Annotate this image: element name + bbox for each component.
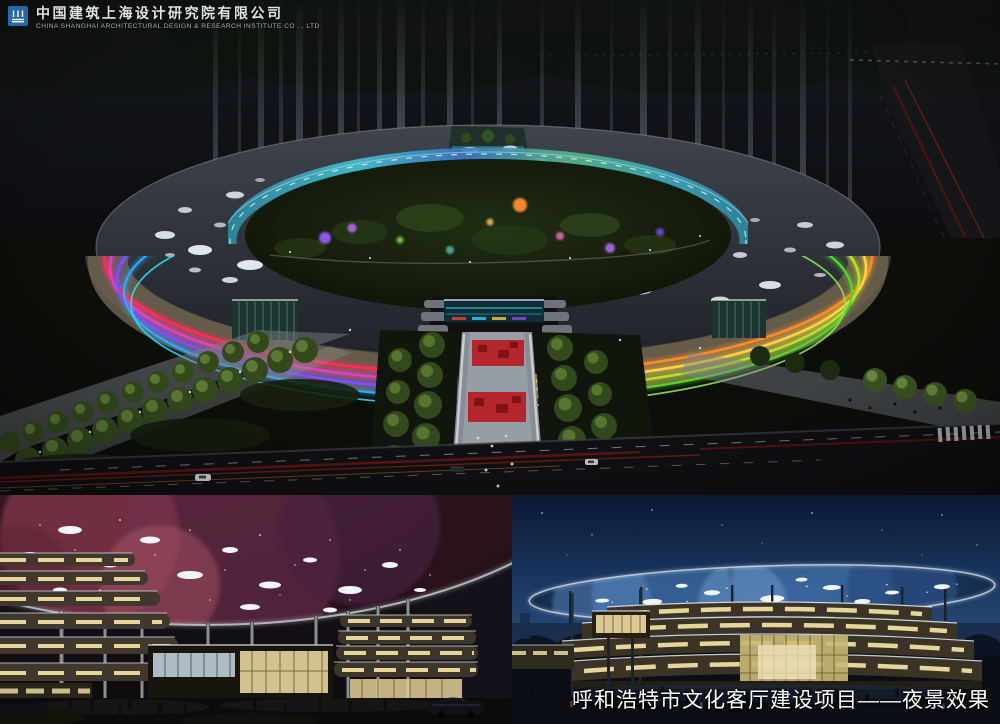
canopy-closeup-render bbox=[0, 495, 512, 724]
company-name-zh: 中国建筑上海设计研究院有限公司 bbox=[36, 6, 320, 21]
warm-lit-lobby bbox=[240, 651, 328, 693]
aerial-render bbox=[0, 0, 1000, 495]
company-name-block: 中国建筑上海设计研究院有限公司 CHINA SHANGHAI ARCHITECT… bbox=[36, 6, 320, 31]
nebula-canopy-closeup-panel bbox=[0, 495, 512, 724]
foreground bbox=[0, 698, 512, 724]
car-edge bbox=[0, 704, 48, 717]
csadi-seal-icon bbox=[8, 6, 28, 26]
center-glass-pavilion bbox=[148, 645, 333, 698]
project-caption: 呼和浩特市文化客厅建设项目——夜景效果 bbox=[572, 684, 990, 714]
street-view-panel: 呼和浩特市文化客厅建设项目——夜景效果 bbox=[512, 495, 1000, 724]
presentation-board: 呼和浩特市文化客厅建设项目——夜景效果 中国建筑上海设计研究院有限公司 CHIN… bbox=[0, 0, 1000, 724]
west-podium bbox=[512, 645, 574, 669]
aerial-night-render-panel bbox=[0, 0, 1000, 495]
company-name-en: CHINA SHANGHAI ARCHITECTURAL DESIGN & RE… bbox=[36, 23, 320, 31]
company-logo-bar: 中国建筑上海设计研究院有限公司 CHINA SHANGHAI ARCHITECT… bbox=[8, 6, 320, 31]
seal-glyph bbox=[11, 9, 25, 23]
vignette bbox=[0, 0, 1000, 495]
distant-tower bbox=[520, 613, 530, 639]
